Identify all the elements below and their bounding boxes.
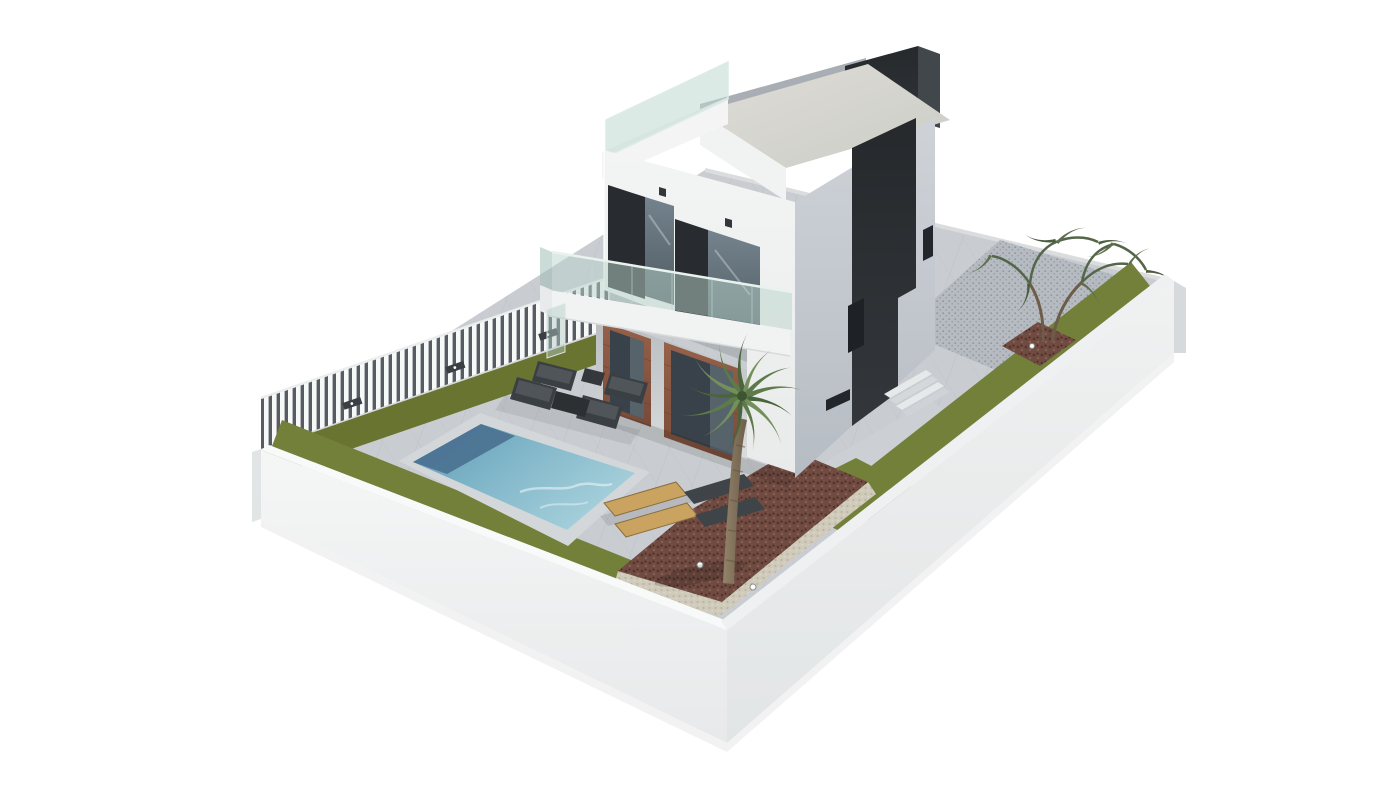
ground-light: [750, 584, 756, 590]
glass-windscreen: [547, 304, 565, 358]
side-window-small: [923, 225, 933, 261]
side-door: [848, 298, 864, 353]
olive-frond: [1054, 225, 1089, 244]
glass-door-left-reflect: [630, 337, 644, 419]
palm-crown: [737, 391, 747, 401]
render-canvas: [0, 0, 1400, 789]
wall-right-end-cap: [1174, 281, 1186, 353]
balcony-glass-return: [540, 247, 552, 290]
ground-light: [1030, 344, 1035, 349]
olive-frond: [1126, 246, 1153, 266]
wall-left-end-cap: [252, 449, 261, 522]
villa-render: [0, 0, 1400, 789]
